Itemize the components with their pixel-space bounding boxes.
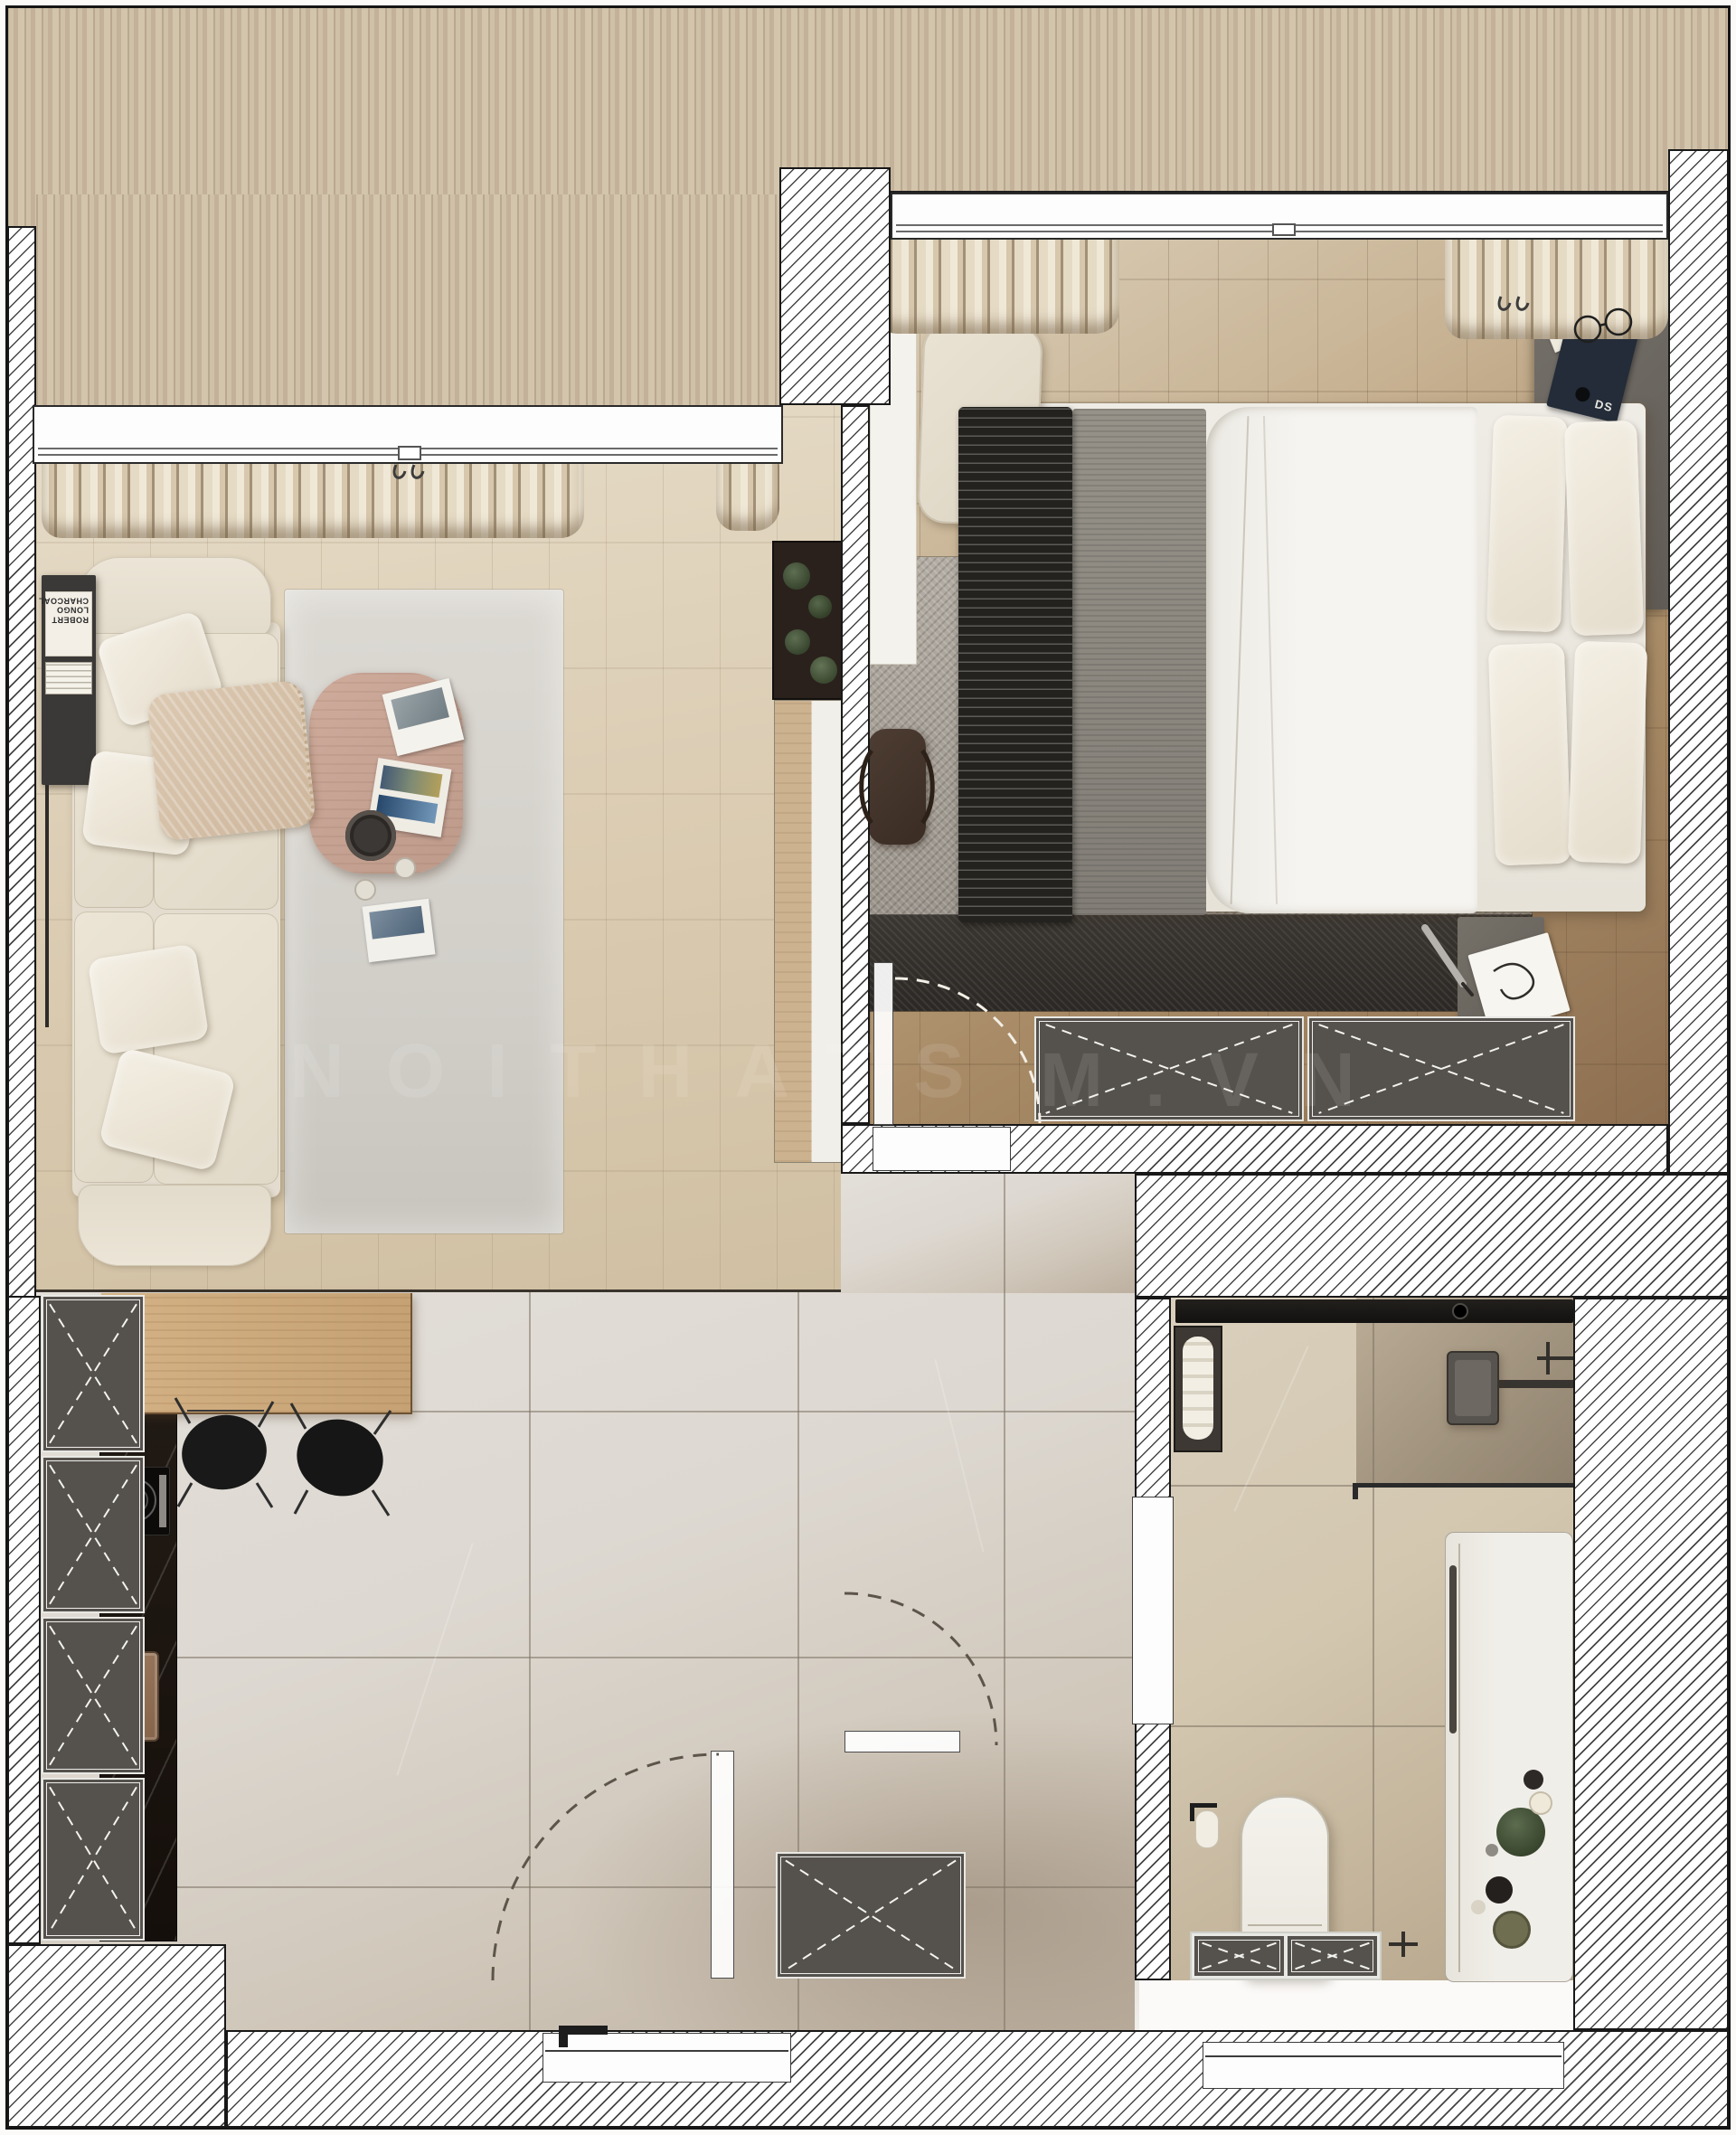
cactus: [783, 562, 810, 590]
bathroom-doorway: [1132, 1497, 1174, 1724]
wall-bathroom-top: [1135, 1174, 1729, 1298]
cactus: [810, 657, 837, 684]
drain-icon: [1452, 1303, 1468, 1319]
bathroom-door-leaf: [844, 1731, 960, 1752]
bedroom-doorway: [873, 1127, 1011, 1171]
shower-glass: [1354, 1483, 1573, 1488]
towel-niche: [1174, 1326, 1222, 1452]
balcony-deck-top: [7, 7, 1729, 194]
curtains-bedroom-left: [877, 238, 1119, 334]
gray-blanket: [1072, 409, 1206, 915]
toilet-seam: [1248, 1924, 1322, 1926]
knit-throw: [146, 679, 316, 841]
bed-pillow: [1488, 643, 1571, 866]
living-floor-edge: [36, 1290, 841, 1292]
cactus: [808, 595, 832, 619]
toilet-paper-holder: [1190, 1803, 1222, 1850]
tray-olive: [1493, 1911, 1531, 1949]
rolled-towel: [1183, 1337, 1213, 1440]
vanity-door: [1193, 1935, 1285, 1977]
balcony-deck-corner: [7, 194, 36, 226]
tile-grout: [1171, 1485, 1354, 1487]
magazine-photo: [380, 765, 442, 798]
kitchen-tall-cabinet: [42, 1456, 145, 1613]
planter-box: [772, 541, 844, 700]
wall-kitchen-left: [7, 1296, 41, 1944]
tile-grout: [1373, 1298, 1374, 1980]
cactus: [785, 629, 810, 655]
hob-control-strip: [159, 1475, 166, 1527]
shelf-book: ROBERT LONGO CHARCOAL: [45, 591, 92, 657]
balcony-deck-left: [36, 194, 781, 405]
tile-grout: [42, 1886, 1135, 1888]
candle: [1524, 1770, 1543, 1790]
white-duvet: [1206, 407, 1477, 913]
tile-grout: [529, 1291, 531, 2031]
shower-arm: [1497, 1380, 1573, 1388]
storage-x-icon: [48, 1623, 138, 1768]
magazine: [362, 899, 435, 963]
tile-grout: [1171, 1725, 1447, 1727]
floor-lamp-stem: [45, 785, 49, 1027]
shelf-book-spine-text: ROBERT LONGO CHARCOAL: [46, 592, 91, 628]
vanity-door: [1287, 1935, 1378, 1977]
bathtub-deck: [1445, 1532, 1573, 1982]
kitchen-tall-cabinet: [42, 1617, 145, 1774]
cup-small: [1471, 1900, 1486, 1914]
kitchen-tall-cabinet: [42, 1778, 145, 1941]
black-zigzag-throw: [958, 407, 1072, 922]
tub-faucet: [1486, 1844, 1498, 1856]
duvet-fold: [1263, 416, 1278, 904]
wall-window-pillar: [779, 167, 891, 405]
tile-grout: [1004, 1174, 1005, 2031]
threshold-line: [545, 2050, 788, 2052]
living-room-window: [33, 405, 783, 464]
cup: [394, 857, 416, 879]
wall-divider: [841, 405, 870, 1124]
tile-grout: [412, 1411, 1135, 1412]
storage-x-icon: [48, 1784, 138, 1934]
tray-round: [1486, 1876, 1513, 1904]
wall-left: [7, 226, 36, 1298]
magazine-stack: [45, 662, 92, 694]
tile-grout: [42, 1657, 1135, 1658]
dining-table: [101, 1293, 412, 1414]
tub-inner-line: [1458, 1544, 1460, 1972]
entry-door-leaf-symbol: [559, 2026, 568, 2047]
bed-pillow: [1568, 641, 1647, 864]
watermark-text: M.VN: [1040, 1036, 1397, 1124]
storage-x-icon: [48, 1301, 138, 1446]
niche-line: [1205, 2055, 1561, 2057]
bedroom-rug-dark-band: [855, 915, 1532, 1011]
curtains-living: [42, 462, 584, 538]
kitchen-tall-cabinet: [42, 1295, 145, 1452]
magazine-photo: [391, 687, 449, 730]
storage-x-icon: [1199, 1941, 1279, 1971]
bed-pillow: [1564, 420, 1644, 637]
duvet-fold: [1231, 416, 1250, 904]
duffel-bag: [868, 729, 926, 845]
bottom-wall-niche: [1203, 2042, 1564, 2089]
wall-right-bedroom: [1668, 149, 1729, 1174]
tp-bracket: [1190, 1803, 1194, 1821]
towel-bar: [1449, 1565, 1457, 1734]
book-cover-text: DS: [1593, 397, 1614, 414]
curtains-bedroom-right: [1445, 238, 1668, 339]
wall-block-bottom-left: [7, 1944, 226, 2128]
sofa-armrest-bottom: [78, 1185, 271, 1266]
entry-doorway: [542, 2033, 791, 2083]
book-dot: [1574, 385, 1591, 402]
bed-pillow: [1486, 415, 1568, 633]
storage-x-icon: [782, 1858, 959, 1972]
shoe-cabinet: [776, 1852, 966, 1979]
bedroom-window: [891, 193, 1668, 240]
tp-roll: [1195, 1810, 1219, 1848]
storage-x-icon: [48, 1462, 138, 1607]
cup: [354, 879, 376, 901]
vanity-cabinet: [1190, 1932, 1382, 1980]
shower-glass-return: [1353, 1483, 1358, 1499]
window-mullion: [1272, 223, 1296, 236]
rain-shower-head: [1447, 1351, 1499, 1425]
watermark-text: NOITHATS: [289, 1027, 1006, 1115]
hallway-upper-floor: [841, 1174, 1135, 1293]
window-mullion: [398, 446, 421, 460]
shower-drain-channel: [1175, 1299, 1573, 1323]
sofa-pillow: [87, 943, 209, 1054]
wall-bathroom-right: [1573, 1298, 1729, 2030]
storage-x-icon: [1292, 1941, 1373, 1971]
serving-tray: [345, 810, 396, 861]
magazine-photo: [369, 906, 424, 940]
floor-plan-canvas: ROBERT LONGO CHARCOAL DS: [0, 0, 1736, 2135]
soap-dish: [1529, 1791, 1552, 1815]
shower-face: [1455, 1360, 1491, 1416]
entry-door-leaf: [711, 1751, 734, 1979]
plant: [1496, 1808, 1545, 1856]
curtains-living-right: [716, 462, 779, 531]
